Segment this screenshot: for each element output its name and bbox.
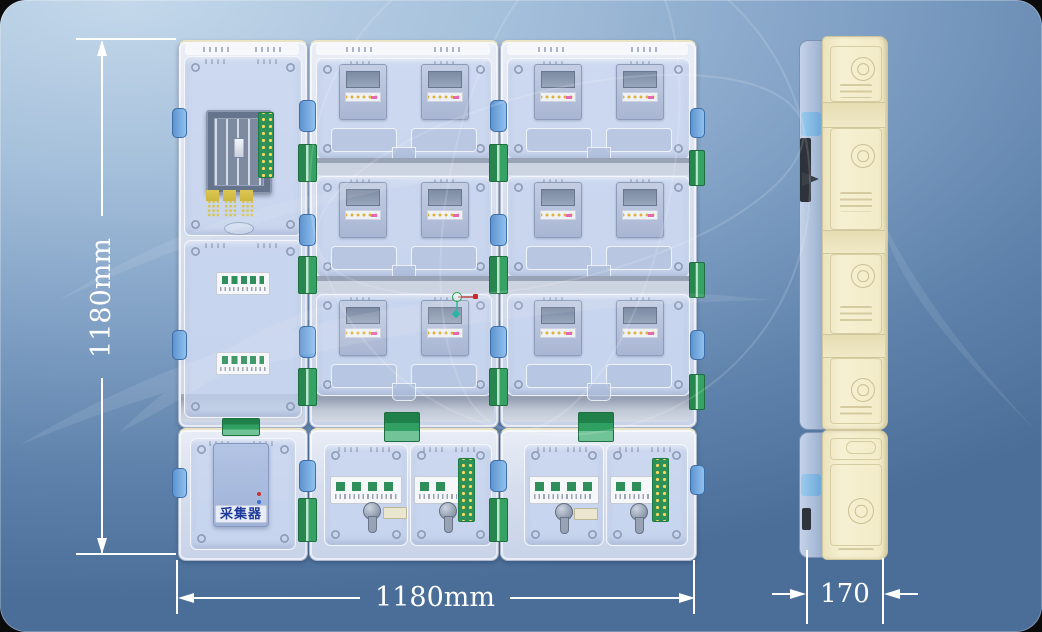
arrow-up-icon bbox=[97, 40, 107, 56]
meter-module bbox=[507, 294, 690, 396]
electric-meter bbox=[339, 182, 387, 238]
door-hinge bbox=[489, 368, 508, 406]
row-rail bbox=[503, 158, 692, 175]
meter-pair bbox=[508, 295, 689, 356]
terminal-covers bbox=[317, 364, 491, 388]
electric-meter bbox=[421, 64, 469, 120]
door-hinge bbox=[689, 374, 705, 410]
meter-display bbox=[428, 189, 462, 206]
vent-grooves bbox=[840, 84, 872, 98]
dim-height-line bbox=[101, 378, 103, 554]
electric-meter bbox=[534, 182, 582, 238]
meter-indicator-strip bbox=[427, 210, 463, 220]
terminal-cover bbox=[411, 128, 477, 152]
terminal-strip bbox=[652, 458, 669, 522]
knob-label-plate bbox=[574, 508, 598, 520]
meter-module bbox=[507, 176, 690, 278]
meter-display bbox=[346, 307, 380, 324]
meter-indicator-strip bbox=[540, 210, 576, 220]
red-led bbox=[257, 492, 261, 496]
terminal-cover bbox=[526, 364, 592, 388]
operation-knob bbox=[363, 502, 381, 520]
side-latch bbox=[801, 112, 821, 136]
electric-meter bbox=[421, 300, 469, 356]
operation-knob bbox=[439, 502, 457, 520]
breaker-row bbox=[610, 476, 658, 504]
lock-boss bbox=[851, 378, 875, 402]
arrow-down-icon bbox=[97, 538, 107, 554]
meter-indicator-strip bbox=[345, 328, 381, 338]
side-panel-cell bbox=[830, 128, 882, 230]
door-hinge bbox=[689, 262, 705, 298]
terminal-strip bbox=[458, 458, 475, 522]
terminal-covers bbox=[508, 246, 689, 270]
door-latch bbox=[299, 100, 316, 132]
side-hinge-bracket bbox=[800, 138, 811, 202]
vent-grooves bbox=[840, 306, 872, 324]
breaker-strip bbox=[216, 352, 270, 375]
dim-depth-label: 170 bbox=[806, 578, 884, 610]
door-latch bbox=[490, 326, 507, 358]
meter-indicator-strip bbox=[622, 210, 658, 220]
x-axis-handle-icon bbox=[473, 294, 478, 299]
electric-meter bbox=[616, 182, 664, 238]
side-panel-tab bbox=[846, 441, 876, 454]
breaker-row bbox=[330, 476, 402, 504]
control-window-lower bbox=[184, 240, 302, 418]
side-section-band bbox=[823, 334, 885, 358]
arrow-left-icon bbox=[178, 593, 194, 603]
door-hinge bbox=[489, 144, 508, 182]
electric-meter bbox=[421, 182, 469, 238]
electric-meter bbox=[339, 300, 387, 356]
terminal-cover bbox=[606, 128, 672, 152]
fuse-block bbox=[206, 190, 219, 217]
meter-pair bbox=[508, 177, 689, 238]
meter-pair bbox=[508, 59, 689, 120]
meter-cabinet-render: 采集器 bbox=[0, 0, 1042, 632]
electric-meter bbox=[616, 64, 664, 120]
door-latch bbox=[490, 214, 507, 246]
dim-width-ext-right bbox=[693, 560, 695, 614]
dim-width-line bbox=[510, 597, 679, 599]
meter-module bbox=[316, 294, 492, 396]
door-latch bbox=[490, 460, 507, 492]
terminal-cover bbox=[526, 246, 592, 270]
door-latch bbox=[172, 330, 187, 360]
meter-indicator-strip bbox=[622, 92, 658, 102]
dim-height-ext-top bbox=[76, 38, 176, 40]
meter-display bbox=[623, 71, 657, 88]
meter-indicator-strip bbox=[345, 210, 381, 220]
door-latch bbox=[299, 326, 316, 358]
meter-module bbox=[316, 176, 492, 278]
lock-boss bbox=[851, 57, 875, 81]
lock-boss bbox=[851, 264, 875, 288]
meter-display bbox=[623, 307, 657, 324]
meter-indicator-strip bbox=[540, 328, 576, 338]
top-vent-cap bbox=[507, 44, 688, 55]
terminal-cover bbox=[606, 246, 672, 270]
arrow-right-icon bbox=[679, 593, 695, 603]
lock-boss bbox=[848, 498, 874, 524]
door-latch bbox=[690, 465, 705, 495]
meter-display bbox=[541, 189, 575, 206]
arrow-right-icon bbox=[790, 589, 806, 599]
side-latch bbox=[801, 474, 821, 496]
terminal-cover bbox=[331, 128, 397, 152]
junction-hinge bbox=[222, 418, 260, 436]
dim-width-line bbox=[194, 597, 360, 599]
meter-display bbox=[541, 71, 575, 88]
door-latch bbox=[172, 468, 187, 498]
meter-pair bbox=[317, 59, 491, 120]
row-rail bbox=[312, 158, 494, 175]
door-hinge bbox=[489, 498, 508, 542]
terminal-covers bbox=[508, 364, 689, 388]
top-vent-cap bbox=[185, 44, 299, 55]
meter-pair bbox=[317, 295, 491, 356]
door-latch bbox=[490, 100, 507, 132]
door-latch bbox=[690, 108, 705, 138]
side-hinge-bracket bbox=[802, 508, 811, 530]
door-hinge bbox=[298, 498, 317, 542]
terminal-cover bbox=[411, 364, 477, 388]
breaker-row bbox=[414, 476, 462, 504]
row-rail bbox=[503, 276, 692, 293]
electric-meter bbox=[534, 300, 582, 356]
electric-meter bbox=[616, 300, 664, 356]
terminal-strip bbox=[258, 112, 274, 178]
meter-display bbox=[541, 307, 575, 324]
meter-module bbox=[316, 58, 492, 160]
terminal-cover bbox=[606, 364, 672, 388]
terminal-cover bbox=[411, 246, 477, 270]
door-hinge bbox=[298, 256, 317, 294]
junction-hinge bbox=[578, 412, 614, 442]
fuse-block bbox=[240, 190, 253, 217]
terminal-covers bbox=[317, 246, 491, 270]
meter-module bbox=[507, 58, 690, 160]
meter-indicator-strip bbox=[540, 92, 576, 102]
terminal-cover bbox=[526, 128, 592, 152]
meter-indicator-strip bbox=[622, 328, 658, 338]
door-hinge bbox=[298, 368, 317, 406]
terminal-cover bbox=[331, 364, 397, 388]
breaker-row bbox=[529, 476, 599, 504]
blue-led bbox=[257, 500, 261, 504]
knob-label-plate bbox=[383, 507, 407, 519]
dim-width-label: 1180mm bbox=[360, 582, 510, 614]
door-hinge bbox=[298, 144, 317, 182]
meter-display bbox=[623, 189, 657, 206]
door-hinge bbox=[689, 150, 705, 186]
door-latch bbox=[690, 330, 705, 360]
dim-height-ext-bottom bbox=[76, 553, 176, 555]
door-latch bbox=[299, 460, 316, 492]
meter-display bbox=[346, 71, 380, 88]
terminal-covers bbox=[508, 128, 689, 152]
collector-label: 采集器 bbox=[215, 505, 267, 523]
door-latch bbox=[299, 214, 316, 246]
junction-hinge bbox=[384, 412, 420, 442]
door-latch bbox=[172, 108, 187, 138]
dim-height-line bbox=[101, 42, 103, 216]
operation-knob bbox=[555, 503, 573, 521]
meter-indicator-strip bbox=[427, 92, 463, 102]
vent-grooves bbox=[840, 192, 872, 212]
meter-pair bbox=[317, 177, 491, 238]
electric-meter bbox=[534, 64, 582, 120]
side-section-band bbox=[823, 230, 885, 254]
vent-grooves bbox=[838, 548, 874, 553]
meter-indicator-strip bbox=[345, 92, 381, 102]
meter-indicator-strip bbox=[427, 328, 463, 338]
row-rail bbox=[312, 276, 494, 293]
lock-boss bbox=[851, 144, 875, 168]
top-vent-cap bbox=[316, 44, 490, 55]
electric-meter bbox=[339, 64, 387, 120]
operation-knob bbox=[630, 503, 648, 521]
door-hinge bbox=[489, 256, 508, 294]
arrow-left-icon bbox=[884, 589, 900, 599]
fuse-block bbox=[223, 190, 236, 217]
meter-display bbox=[346, 189, 380, 206]
dim-width-ext-left bbox=[176, 560, 178, 614]
side-section-band bbox=[823, 102, 885, 128]
dim-height-label: 1180mm bbox=[86, 218, 118, 378]
terminal-covers bbox=[317, 128, 491, 152]
terminal-cover bbox=[331, 246, 397, 270]
vent-grooves bbox=[840, 406, 872, 418]
origin-marker-icon bbox=[452, 292, 462, 302]
cable-gland bbox=[224, 222, 254, 235]
breaker-strip bbox=[216, 272, 270, 295]
meter-display bbox=[428, 71, 462, 88]
